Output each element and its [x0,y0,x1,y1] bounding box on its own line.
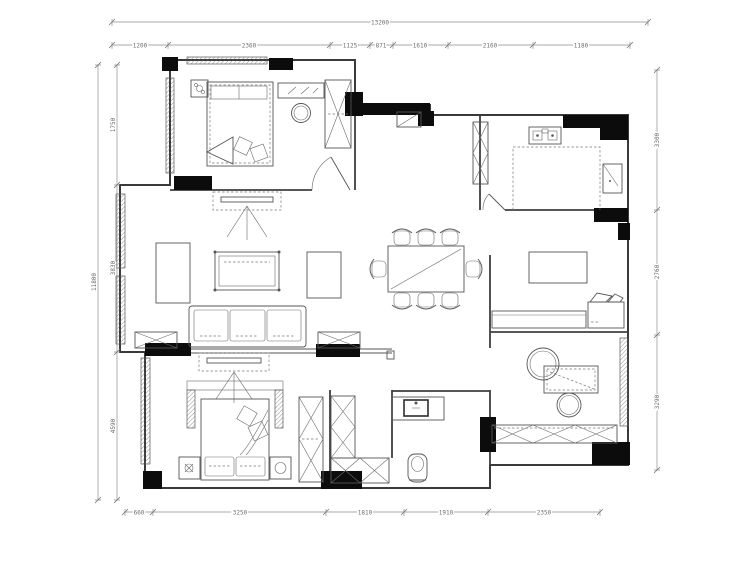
sideboard [529,252,587,283]
dim-label-right-1: 3300 [654,132,661,147]
dim-label-top-2: 2360 [242,43,257,50]
master-bedroom [179,353,323,482]
bookshelf-cabinet [492,425,617,443]
fridge-icon [603,164,622,193]
dim-label-top-6: 2160 [483,43,498,50]
low-cabinet [492,311,586,328]
living-room [135,192,360,348]
dimension-left-total: 11800 [91,62,101,503]
tall-storage-cabinet [331,396,355,458]
vanity-sink [392,397,444,420]
bed-double-1 [207,82,273,166]
dim-label-top-4: 871 [376,43,387,50]
dim-label-bottom-3: 1810 [358,510,373,517]
dim-label-bottom-4: 1910 [439,510,454,517]
nightstand-lamp [270,457,291,479]
nightstand-1 [191,80,208,97]
window-bedroom1-left [166,78,174,173]
study [492,348,617,443]
dim-label-top-total: 13200 [371,20,389,27]
dim-label-bottom-5: 2350 [537,510,552,517]
dim-label-top-7: 1180 [574,43,589,50]
bed-double-master [201,399,269,480]
window-bedroom1-top [187,57,267,64]
dim-label-top-1: 1200 [133,43,148,50]
floor-plan: 13200 1200 2360 1125 871 1610 2160 1180 … [0,0,740,574]
wardrobe-master [299,397,323,482]
dim-label-right-3: 3290 [654,394,661,409]
dimension-right-segments: 3300 2760 3290 [654,67,661,473]
dim-label-left-2: 3830 [110,260,117,275]
window-master-left [141,358,150,464]
dim-label-top-5: 1610 [413,43,428,50]
right-middle-area [492,252,624,328]
bedroom1 [191,80,351,190]
wardrobe-1 [325,80,351,148]
dim-label-bottom-1: 660 [134,510,145,517]
side-table-right [307,252,341,298]
armchair [588,293,624,328]
stool-round-1 [292,104,311,123]
bathroom [331,396,444,483]
door-bedroom1 [312,157,350,190]
dim-label-left-total: 11800 [91,273,98,291]
nightstand-plant [179,457,200,479]
wall-piers [143,57,630,489]
desk [544,366,598,393]
sofa-3-seat [189,306,306,347]
round-chair-small [557,393,581,417]
tv-cabinet-living [213,192,281,240]
floor-plan-svg: 13200 1200 2360 1125 871 1610 2160 1180 … [0,0,740,574]
window-study-right [620,338,628,426]
dim-label-left-3: 4590 [110,418,117,433]
side-table-left [156,243,190,303]
dim-label-bottom-2: 3250 [233,510,248,517]
dimension-top-segments: 1200 2360 1125 871 1610 2160 1180 [109,42,633,50]
dim-label-top-3: 1125 [343,43,358,50]
stove-icon [529,127,561,144]
dim-label-right-2: 2760 [654,264,661,279]
tv-cabinet-master [199,353,269,403]
toilet-icon [408,454,427,482]
dining-area [370,229,482,309]
entry-hall [397,112,488,184]
dimension-top-total: 13200 [109,19,651,27]
dimension-bottom: 660 3250 1810 1910 2350 [122,509,603,517]
exterior-walls [120,60,628,488]
round-chair-large [527,348,559,380]
door-kitchen [483,194,505,210]
coffee-table [214,251,281,292]
interior-walls [170,105,628,471]
kitchen-counter [513,147,600,210]
dresser-1 [278,83,324,98]
dim-label-left-1: 1750 [110,117,117,132]
